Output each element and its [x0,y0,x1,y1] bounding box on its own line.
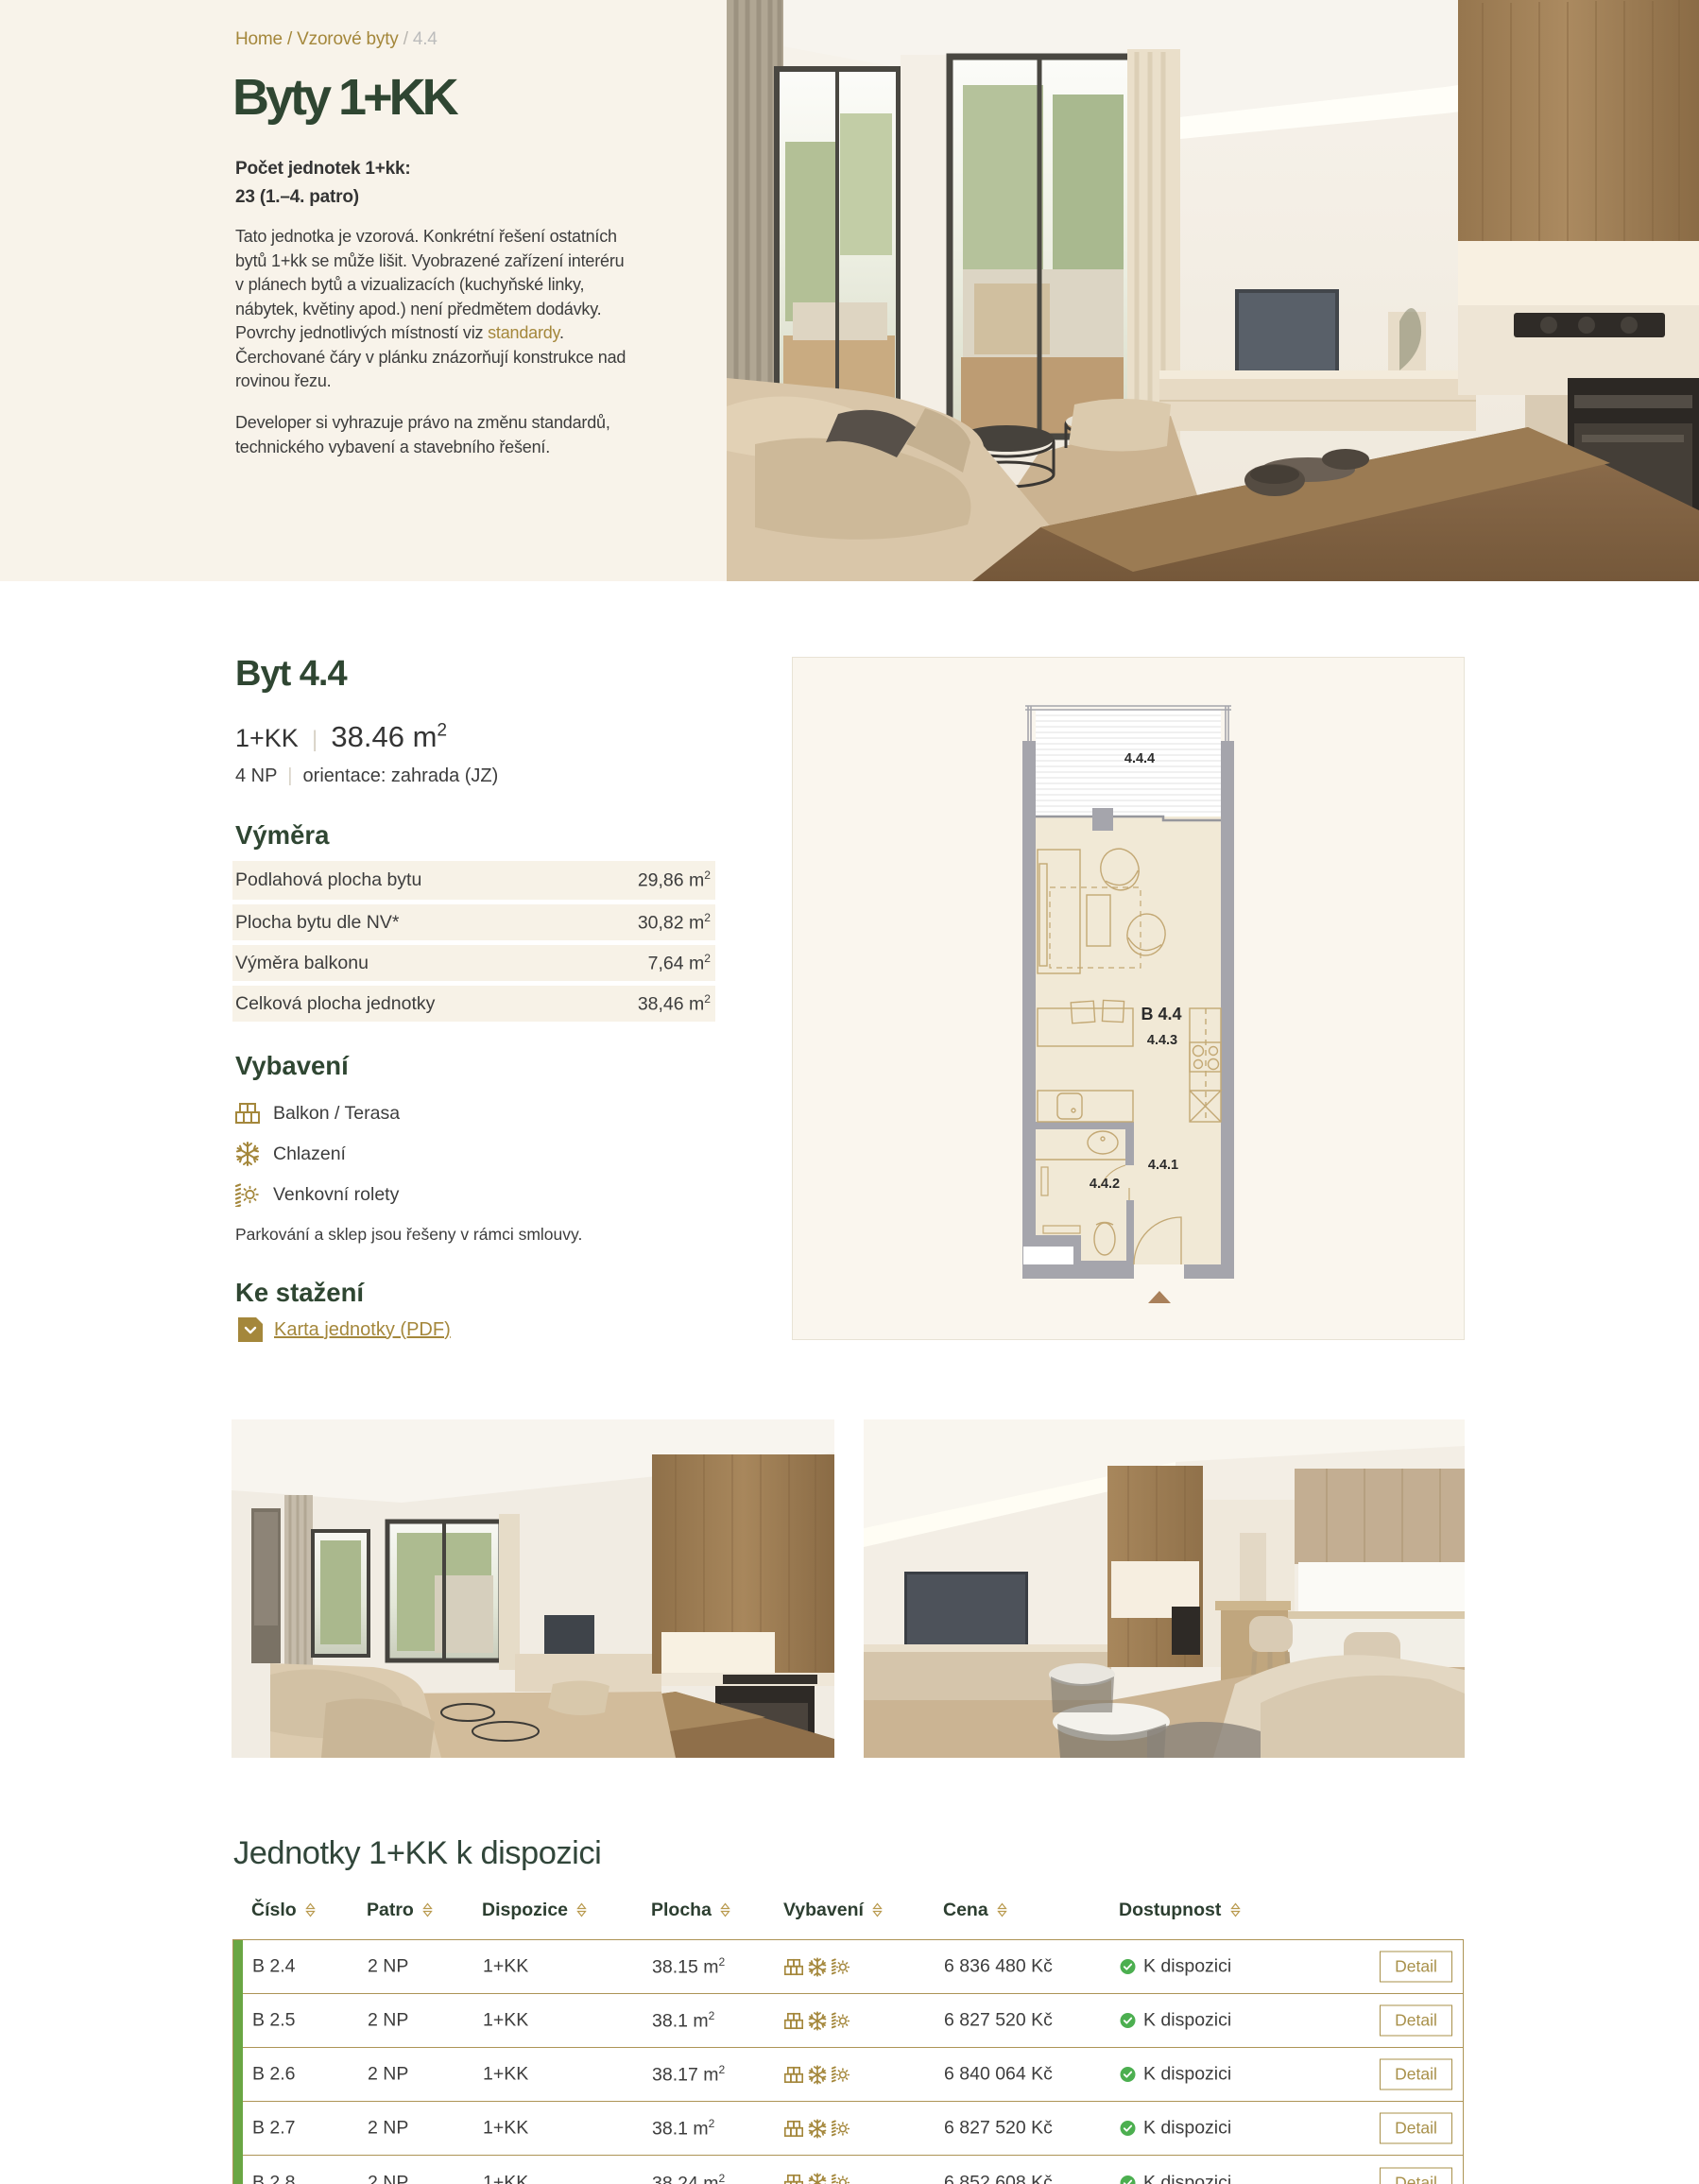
svg-text:4.4.1: 4.4.1 [1148,1158,1178,1173]
svg-text:4.4.4: 4.4.4 [1124,751,1155,766]
svg-text:4.4.2: 4.4.2 [1090,1177,1120,1192]
svg-text:B 4.4: B 4.4 [1141,1005,1181,1023]
svg-text:4.4.3: 4.4.3 [1147,1033,1177,1048]
